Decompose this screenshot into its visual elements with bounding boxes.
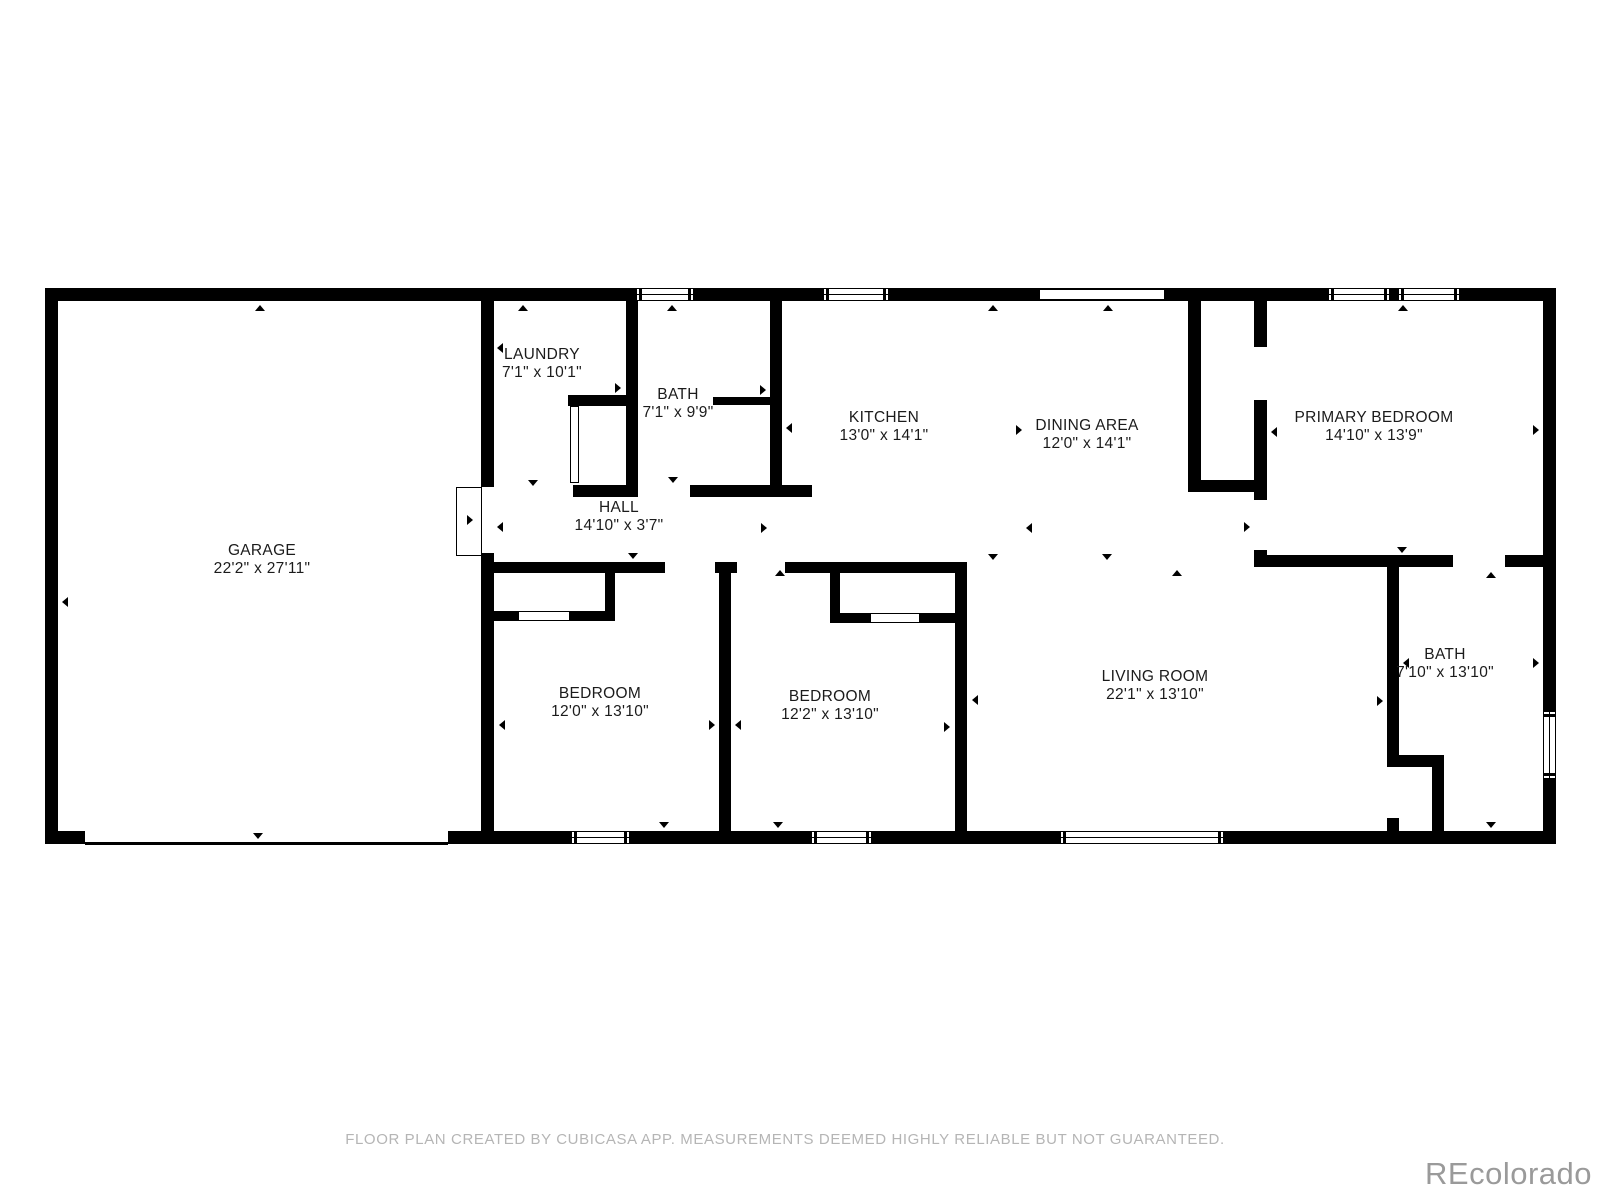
room-dimensions: 14'10" x 3'7" — [575, 517, 664, 535]
room-dimensions: 22'2" x 27'11" — [214, 560, 311, 578]
room-dimensions: 7'1" x 10'1" — [502, 364, 582, 382]
wall-segment — [1188, 301, 1201, 492]
measure-tick-up — [1398, 305, 1408, 311]
room-dimensions: 7'1" x 9'9" — [642, 404, 713, 422]
window — [811, 831, 872, 844]
measure-tick-left — [972, 695, 978, 705]
measure-tick-up — [988, 305, 998, 311]
measure-tick-up — [518, 305, 528, 311]
window — [823, 288, 889, 301]
measure-tick-down — [988, 554, 998, 560]
measure-tick-right — [761, 523, 767, 533]
wall-segment — [1387, 755, 1444, 767]
floor-plan-page: { "footer": { "disclaimer": "FLOOR PLAN … — [0, 0, 1600, 1200]
room-label: PRIMARY BEDROOM14'10" x 13'9" — [1295, 409, 1454, 445]
wall-segment — [1387, 818, 1399, 831]
wall-segment — [481, 562, 665, 573]
wall-segment — [570, 611, 615, 621]
measure-tick-down — [773, 822, 783, 828]
wall-segment — [770, 301, 782, 497]
window — [1543, 711, 1556, 779]
measure-tick-up — [1103, 305, 1113, 311]
room-dimensions: 12'2" x 13'10" — [781, 706, 879, 724]
wall-segment — [1254, 555, 1453, 567]
room-name: BATH — [1396, 646, 1494, 664]
wall-segment — [719, 573, 731, 831]
door-leaf — [518, 611, 570, 621]
measure-tick-right — [1244, 522, 1250, 532]
room-label: BATH7'10" x 13'10" — [1396, 646, 1494, 682]
measure-tick-left — [735, 720, 741, 730]
wall-segment — [785, 562, 967, 573]
disclaimer-text: FLOOR PLAN CREATED BY CUBICASA APP. MEAS… — [0, 1131, 1570, 1148]
wall-segment — [713, 397, 770, 405]
measure-tick-right — [467, 515, 473, 525]
window — [1328, 288, 1390, 301]
room-name: KITCHEN — [840, 409, 929, 427]
room-dimensions: 12'0" x 13'10" — [551, 703, 649, 721]
room-dimensions: 13'0" x 14'1" — [840, 427, 929, 445]
room-label: KITCHEN13'0" x 14'1" — [840, 409, 929, 445]
room-label: BEDROOM12'2" x 13'10" — [781, 688, 879, 724]
measure-tick-right — [1377, 696, 1383, 706]
garage-door-opening — [85, 830, 448, 842]
window — [1039, 289, 1165, 300]
measure-tick-down — [253, 833, 263, 839]
wall-segment — [1505, 555, 1543, 567]
room-dimensions: 7'10" x 13'10" — [1396, 664, 1494, 682]
measure-tick-left — [1026, 523, 1032, 533]
wall-segment — [920, 613, 955, 623]
floor-plan-canvas: GARAGE22'2" x 27'11"LAUNDRY7'1" x 10'1"B… — [0, 0, 1600, 1200]
measure-tick-up — [775, 570, 785, 576]
room-label: LIVING ROOM22'1" x 13'10" — [1102, 668, 1209, 704]
wall-segment — [573, 485, 638, 497]
wall-segment — [568, 395, 638, 406]
room-name: BEDROOM — [551, 685, 649, 703]
measure-tick-up — [255, 305, 265, 311]
measure-tick-right — [1016, 425, 1022, 435]
wall-segment — [494, 611, 518, 621]
room-name: PRIMARY BEDROOM — [1295, 409, 1454, 427]
window — [571, 831, 630, 844]
room-name: LIVING ROOM — [1102, 668, 1209, 686]
measure-tick-down — [1397, 547, 1407, 553]
measure-tick-down — [659, 822, 669, 828]
measure-tick-up — [1172, 570, 1182, 576]
wall-segment — [45, 288, 58, 844]
wall-segment — [840, 613, 870, 623]
measure-tick-down — [668, 477, 678, 483]
measure-tick-down — [1102, 554, 1112, 560]
window — [636, 288, 694, 301]
wall-segment — [1254, 400, 1267, 500]
measure-tick-right — [760, 385, 766, 395]
room-name: DINING AREA — [1035, 417, 1138, 435]
wall-segment — [1254, 301, 1267, 347]
measure-tick-left — [786, 423, 792, 433]
room-label: GARAGE22'2" x 27'11" — [214, 542, 311, 578]
measure-tick-down — [1486, 822, 1496, 828]
measure-tick-right — [1533, 425, 1539, 435]
measure-tick-right — [615, 383, 621, 393]
measure-tick-up — [1486, 572, 1496, 578]
wall-segment — [715, 562, 737, 573]
door-leaf — [870, 613, 920, 623]
window — [1060, 831, 1224, 844]
measure-tick-left — [62, 597, 68, 607]
wall-segment — [690, 485, 812, 497]
wall-segment — [1432, 767, 1444, 831]
measure-tick-left — [1271, 427, 1277, 437]
wall-segment — [830, 573, 840, 623]
room-label: LAUNDRY7'1" x 10'1" — [502, 346, 582, 382]
wall-segment — [481, 301, 494, 487]
room-label: BATH7'1" x 9'9" — [642, 386, 713, 422]
measure-tick-right — [1533, 658, 1539, 668]
recolorado-watermark: REcolorado — [1425, 1156, 1592, 1192]
room-name: GARAGE — [214, 542, 311, 560]
room-label: DINING AREA12'0" x 14'1" — [1035, 417, 1138, 453]
measure-tick-left — [499, 720, 505, 730]
room-name: HALL — [575, 499, 664, 517]
wall-segment — [481, 553, 494, 831]
room-dimensions: 14'10" x 13'9" — [1295, 427, 1454, 445]
wall-segment — [955, 562, 967, 831]
measure-tick-down — [628, 553, 638, 559]
room-label: BEDROOM12'0" x 13'10" — [551, 685, 649, 721]
measure-tick-up — [667, 305, 677, 311]
room-name: BEDROOM — [781, 688, 879, 706]
measure-tick-right — [709, 720, 715, 730]
door-leaf — [570, 406, 579, 483]
room-dimensions: 22'1" x 13'10" — [1102, 686, 1209, 704]
window — [1398, 288, 1460, 301]
measure-tick-left — [497, 522, 503, 532]
garage-door-line — [85, 842, 448, 845]
room-name: BATH — [642, 386, 713, 404]
measure-tick-down — [528, 480, 538, 486]
room-name: LAUNDRY — [502, 346, 582, 364]
measure-tick-right — [944, 722, 950, 732]
room-label: HALL14'10" x 3'7" — [575, 499, 664, 535]
room-dimensions: 12'0" x 14'1" — [1035, 435, 1138, 453]
